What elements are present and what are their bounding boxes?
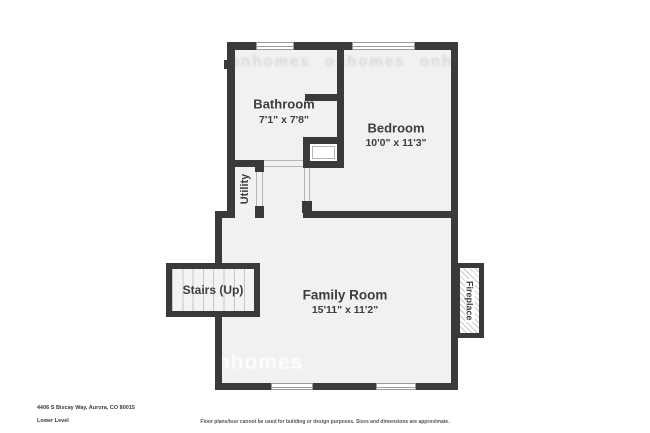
wall-outer-left-lower	[215, 315, 222, 390]
door-bedroom	[304, 168, 310, 201]
wall-bedroom-family-divider	[303, 211, 458, 218]
wall-utility-door-stub-top	[255, 160, 264, 172]
door-utility	[256, 172, 263, 206]
wall-utility-door-stub-bottom	[255, 206, 264, 218]
wall-outer-left-mid	[215, 211, 222, 268]
door-bathroom	[264, 160, 303, 167]
bathroom-dims: 7'1" x 7'8"	[259, 114, 309, 126]
wall-closet-left	[303, 137, 310, 168]
footer-address: 4406 S Biscay Way, Aurora, CO 80015	[37, 405, 135, 411]
wall-outer-bottom	[215, 383, 458, 390]
family-room-label: Family Room	[303, 288, 388, 303]
bathroom-label: Bathroom	[253, 97, 314, 112]
window-family-left	[271, 383, 313, 390]
stairs-label: Stairs (Up)	[183, 283, 244, 297]
watermark-text: onhomes	[325, 53, 406, 70]
watermark-top: onhomes onhomes onhomes	[230, 53, 458, 73]
fireplace-label: Fireplace	[465, 279, 475, 323]
footer-disclaimer: Floor plans/tour cannot be used for buil…	[0, 419, 650, 425]
stairs-treads: Stairs (Up)	[172, 269, 254, 311]
watermark-text: onhomes	[420, 53, 458, 70]
bedroom-dims: 10'0" x 11'3"	[365, 137, 426, 149]
utility-label: Utility	[239, 174, 251, 205]
window-family-right	[376, 383, 416, 390]
family-room-dims: 15'11" x 11'2"	[312, 304, 378, 316]
bedroom-label: Bedroom	[367, 121, 424, 136]
watermark-text: onhomes	[230, 53, 311, 70]
floor-plan-page: onhomes onhomes onhomes onhomes Stairs (…	[0, 0, 650, 433]
closet-door-line	[312, 146, 335, 159]
fireplace-hatch: Fireplace	[460, 268, 479, 333]
window-bedroom	[352, 42, 415, 50]
wall-knob	[224, 60, 229, 69]
window-bathroom	[256, 42, 294, 50]
